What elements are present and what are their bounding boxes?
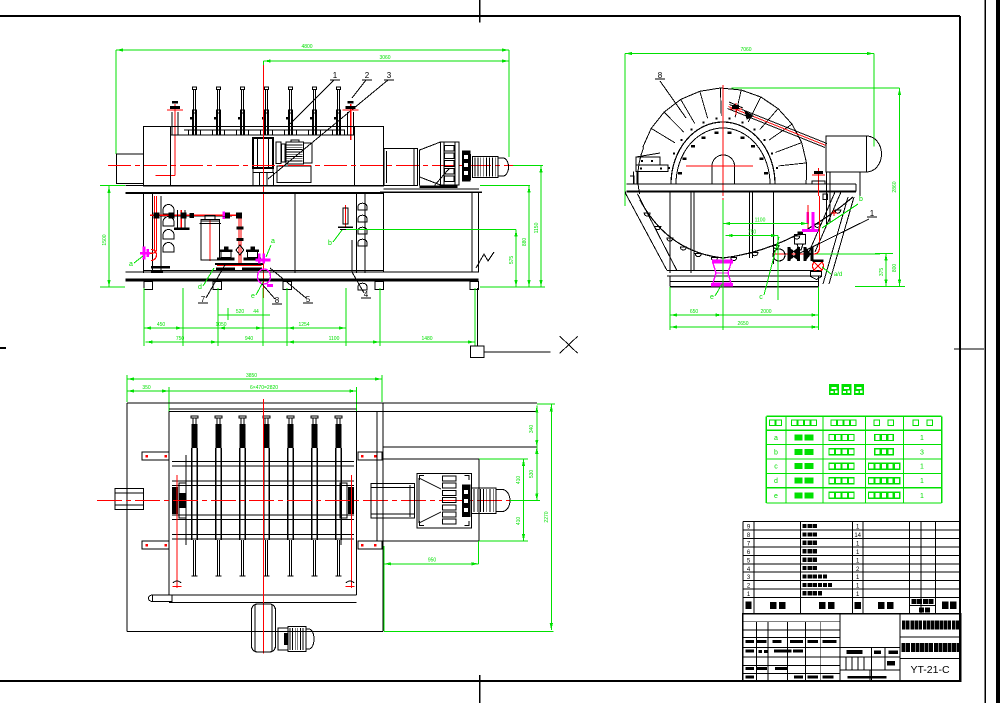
svg-text:1500: 1500 (102, 234, 108, 245)
svg-text:450: 450 (157, 322, 166, 328)
svg-text:1: 1 (920, 435, 924, 442)
svg-text:575: 575 (509, 256, 515, 265)
svg-text:44: 44 (253, 309, 259, 315)
svg-text:1050: 1050 (215, 322, 226, 328)
svg-text:2270: 2270 (544, 511, 550, 522)
svg-text:1: 1 (920, 464, 924, 471)
svg-text:YT-21-C: YT-21-C (910, 664, 950, 676)
svg-text:880: 880 (522, 238, 528, 247)
svg-text:a: a (774, 435, 778, 442)
svg-text:1: 1 (333, 71, 338, 80)
svg-text:e: e (710, 294, 714, 301)
svg-text:3: 3 (920, 449, 924, 456)
svg-text:1: 1 (920, 478, 924, 485)
svg-text:3: 3 (387, 71, 392, 80)
svg-text:d: d (198, 284, 202, 291)
svg-text:e: e (774, 493, 778, 500)
svg-text:650: 650 (690, 309, 699, 315)
svg-text:1: 1 (920, 493, 924, 500)
svg-text:d: d (774, 478, 778, 485)
svg-text:4800: 4800 (301, 44, 312, 50)
svg-text:6×470=2820: 6×470=2820 (250, 385, 278, 391)
svg-text:a/d: a/d (834, 272, 842, 278)
svg-text:1150: 1150 (534, 222, 540, 233)
svg-text:1100: 1100 (755, 218, 766, 224)
svg-text:530: 530 (529, 470, 535, 479)
svg-text:410: 410 (516, 517, 522, 526)
svg-text:2: 2 (365, 71, 370, 80)
svg-text:750: 750 (176, 336, 185, 342)
svg-text:14: 14 (854, 533, 861, 539)
svg-text:375: 375 (879, 268, 885, 277)
svg-text:e: e (251, 293, 255, 300)
svg-text:2650: 2650 (737, 321, 748, 327)
svg-text:c: c (759, 294, 763, 301)
svg-text:c: c (774, 464, 778, 471)
svg-text:1254: 1254 (298, 322, 309, 328)
svg-text:350: 350 (142, 385, 151, 391)
svg-text:b: b (328, 240, 332, 247)
svg-text:950: 950 (428, 558, 437, 564)
svg-text:b: b (859, 196, 863, 203)
svg-text:3850: 3850 (246, 373, 257, 379)
svg-text:7060: 7060 (740, 47, 751, 53)
svg-text:410: 410 (516, 476, 522, 485)
svg-text:3060: 3060 (379, 55, 390, 61)
svg-text:520: 520 (236, 309, 245, 315)
svg-text:750: 750 (748, 230, 757, 236)
svg-text:1100: 1100 (329, 336, 340, 342)
svg-text:b: b (774, 449, 778, 456)
svg-text:1480: 1480 (421, 336, 432, 342)
svg-text:2000: 2000 (760, 309, 771, 315)
svg-text:940: 940 (245, 336, 254, 342)
svg-text:a: a (271, 238, 275, 245)
svg-text:340: 340 (529, 425, 535, 434)
svg-text:2860: 2860 (892, 181, 898, 192)
svg-text:800: 800 (892, 264, 898, 273)
svg-text:a: a (129, 261, 133, 268)
